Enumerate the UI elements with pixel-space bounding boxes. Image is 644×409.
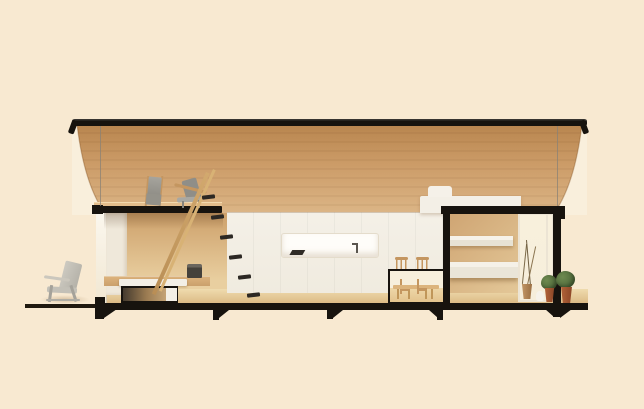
foot-1-bracket [104,309,117,318]
storage-bench-top [119,279,187,286]
potted-plant-2-foliage [556,271,575,288]
foot-5-bracket-right [560,309,572,318]
nook-table-leg-1 [397,289,399,299]
deck-chair-runner [46,299,80,301]
nook-chair-2-leg [425,290,427,299]
cable-left [100,126,101,206]
right-room-top-beam [441,206,565,214]
foot-3-bracket [333,310,343,318]
left-deck-line [25,304,97,308]
nook-table-leg-2 [431,289,433,299]
right-room-post-right [553,206,561,317]
under-loft-shadow [104,213,223,229]
foot-4-stem [437,310,443,320]
stove [187,264,202,278]
right-room-post-left [443,206,450,303]
lounge-chair-leg-1 [182,201,184,208]
nook-chair-1-leg [408,290,410,299]
loft-floor-beam [93,206,222,213]
foot-2-bracket [219,310,229,318]
dining-nook [388,269,447,304]
architectural-section-render [0,0,644,409]
cooktop [290,250,306,255]
potted-plant-1-foliage [541,275,557,290]
foot-2-stem [213,310,219,320]
bed-platform [449,262,518,278]
loft-chair-seat-panel [146,193,162,205]
cabinet-box [428,186,452,197]
upper-shelf [449,236,513,246]
faucet-spout [352,243,358,245]
cable-right [557,126,558,206]
nook-chair-2-back [417,279,419,294]
foot-3-stem [327,310,333,319]
foot-5-bracket-left [545,309,554,317]
floor-base-band [95,303,588,310]
storage-bench-leg [166,288,177,301]
foot-1-stem [95,310,104,319]
cat-figurine [536,291,544,301]
roof-slab [72,119,587,126]
